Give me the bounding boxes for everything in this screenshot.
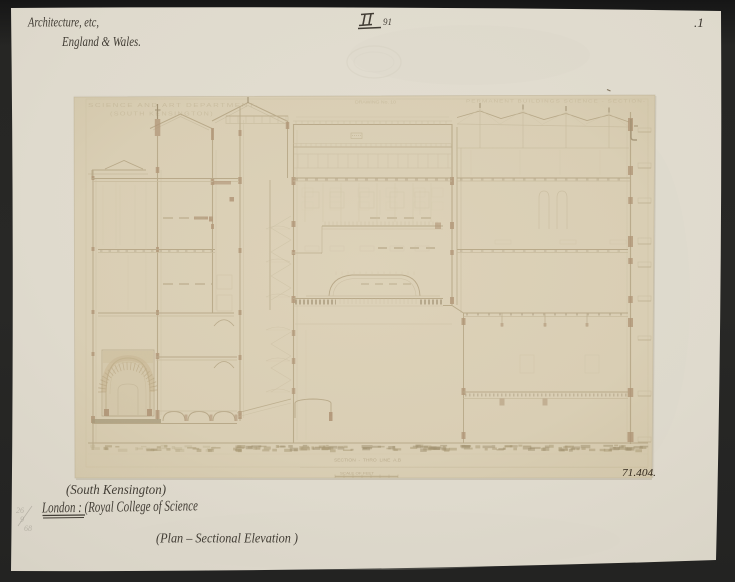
svg-text:London : (Royal College of Sci: London : (Royal College of Science: [41, 498, 198, 516]
svg-text:91: 91: [383, 17, 392, 27]
svg-text:26: 26: [16, 506, 24, 515]
svg-text:68: 68: [24, 524, 32, 533]
svg-text:Architecture, etc,: Architecture, etc,: [27, 15, 99, 30]
svg-text:.1: .1: [694, 15, 704, 30]
svg-text:(South Kensington): (South Kensington): [66, 482, 166, 497]
svg-text:(Plan – Sectional Elevation ): (Plan – Sectional Elevation ): [156, 531, 298, 546]
svg-text:71.404.: 71.404.: [622, 468, 656, 479]
svg-text:England & Wales.: England & Wales.: [61, 34, 141, 49]
